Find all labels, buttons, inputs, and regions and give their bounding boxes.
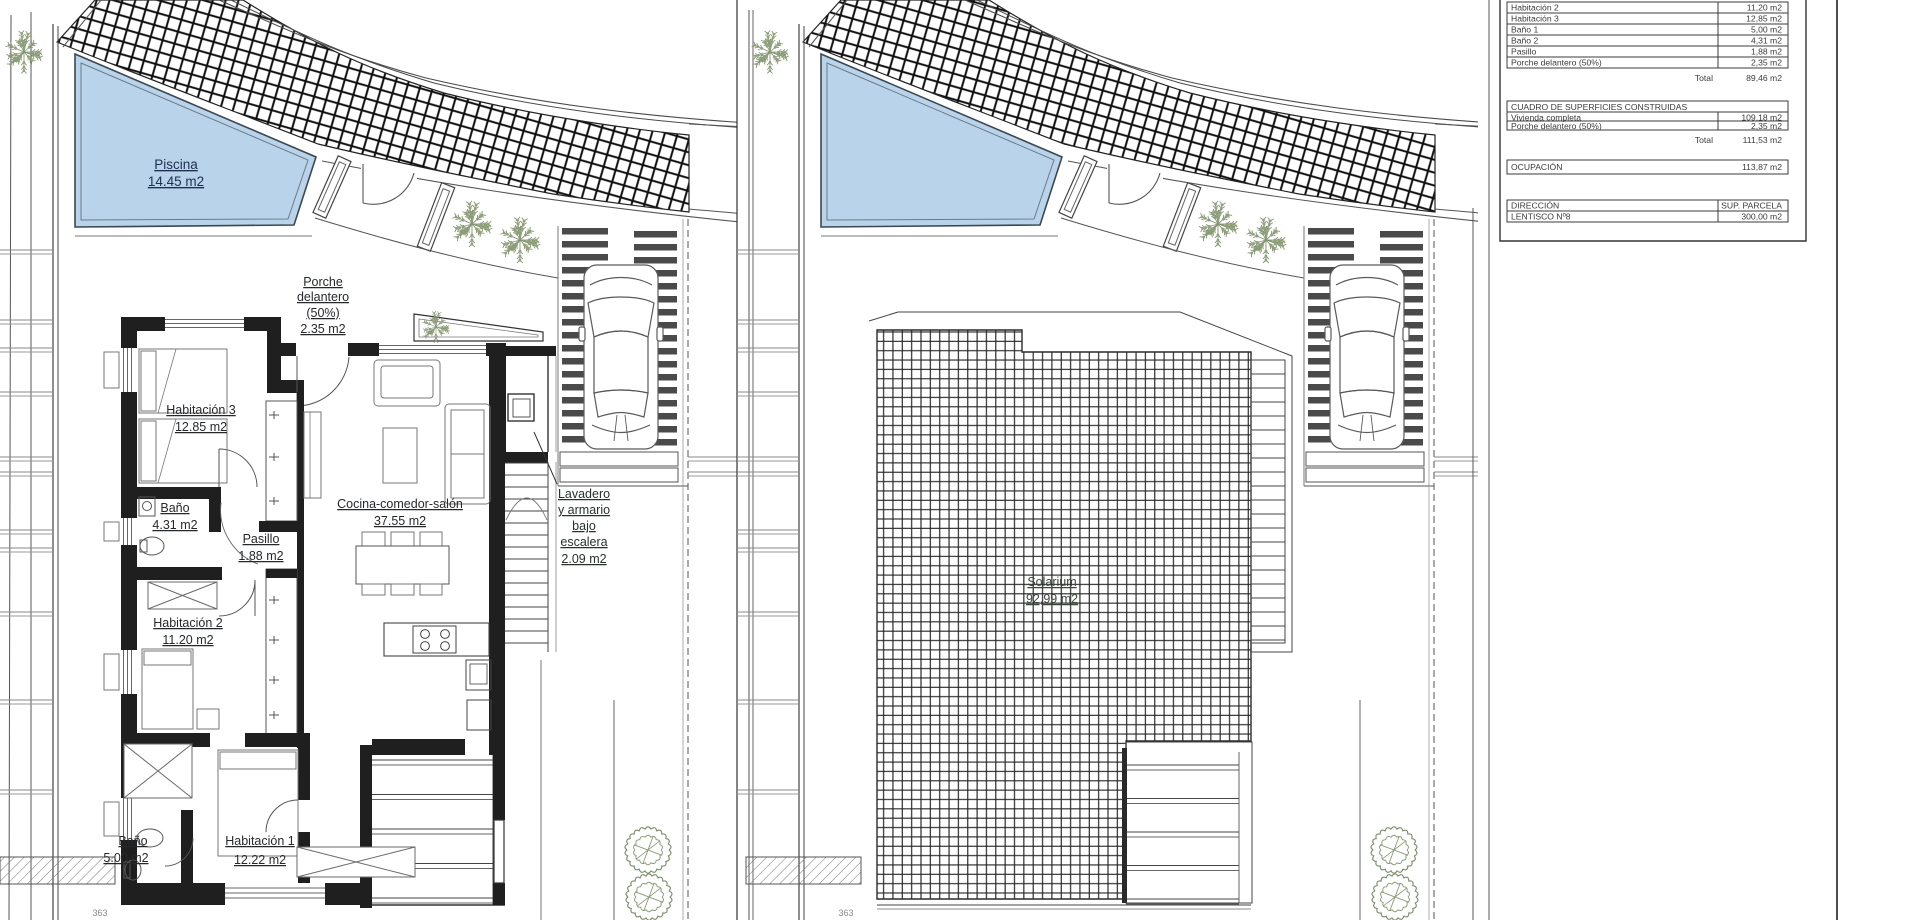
svg-text:92,99 m2: 92,99 m2 <box>1026 592 1078 606</box>
svg-text:5.00 m2: 5.00 m2 <box>103 851 148 865</box>
svg-text:escalera: escalera <box>560 535 607 549</box>
svg-text:113,87 m2: 113,87 m2 <box>1742 162 1782 172</box>
svg-text:Piscina: Piscina <box>154 157 198 172</box>
svg-text:12,85 m2: 12,85 m2 <box>1746 14 1782 24</box>
svg-text:LENTISCO Nº8: LENTISCO Nº8 <box>1511 212 1571 222</box>
svg-text:Baño 2: Baño 2 <box>1511 36 1538 46</box>
svg-text:delantero: delantero <box>297 290 349 304</box>
svg-text:Habitación 3: Habitación 3 <box>166 403 236 417</box>
svg-text:11.20 m2: 11.20 m2 <box>162 633 213 647</box>
svg-text:bajo: bajo <box>572 519 596 533</box>
svg-text:CUADRO DE SUPERFICIES CONSTRUI: CUADRO DE SUPERFICIES CONSTRUIDAS <box>1511 102 1687 112</box>
svg-text:Habitación 2: Habitación 2 <box>1511 3 1559 13</box>
svg-text:4,31 m2: 4,31 m2 <box>1751 36 1782 46</box>
svg-text:Solarium: Solarium <box>1027 575 1076 589</box>
svg-text:Porche delantero (50%): Porche delantero (50%) <box>1511 58 1602 68</box>
svg-text:OCUPACIÓN: OCUPACIÓN <box>1511 162 1562 172</box>
svg-text:12.22 m2: 12.22 m2 <box>234 853 286 867</box>
svg-text:y armario: y armario <box>558 503 610 517</box>
svg-text:14.45 m2: 14.45 m2 <box>148 174 204 189</box>
svg-text:37.55 m2: 37.55 m2 <box>374 514 426 528</box>
svg-text:Lavadero: Lavadero <box>558 487 610 501</box>
svg-text:Baño: Baño <box>160 501 189 515</box>
svg-text:Baño 1: Baño 1 <box>1511 25 1538 35</box>
svg-text:89,46 m2: 89,46 m2 <box>1746 73 1782 83</box>
svg-text:Habitación 1: Habitación 1 <box>225 834 295 848</box>
svg-text:Pasillo: Pasillo <box>243 532 280 546</box>
svg-text:Cocina-comedor-salón: Cocina-comedor-salón <box>337 497 463 511</box>
svg-text:(50%): (50%) <box>306 306 339 320</box>
svg-text:Pasillo: Pasillo <box>1511 47 1537 57</box>
svg-text:Baño: Baño <box>118 834 147 848</box>
svg-text:2.09 m2: 2.09 m2 <box>561 552 606 566</box>
svg-text:11,20 m2: 11,20 m2 <box>1747 3 1782 13</box>
svg-text:5,00 m2: 5,00 m2 <box>1751 25 1782 35</box>
svg-text:Habitación 3: Habitación 3 <box>1511 14 1559 24</box>
svg-text:12.85 m2: 12.85 m2 <box>175 420 227 434</box>
svg-text:363: 363 <box>838 908 853 918</box>
svg-text:Total: Total <box>1695 135 1713 145</box>
svg-text:Porche: Porche <box>303 275 343 289</box>
svg-text:SUP. PARCELA: SUP. PARCELA <box>1721 201 1782 211</box>
svg-text:DIRECCIÓN: DIRECCIÓN <box>1511 201 1559 211</box>
svg-text:2.35 m2: 2.35 m2 <box>300 322 345 336</box>
svg-text:4.31 m2: 4.31 m2 <box>152 518 197 532</box>
svg-text:Habitación 2: Habitación 2 <box>153 616 223 630</box>
svg-text:363: 363 <box>92 908 107 918</box>
svg-text:111,53 m2: 111,53 m2 <box>1743 135 1783 145</box>
svg-text:2,35 m2: 2,35 m2 <box>1751 121 1782 131</box>
svg-text:300,00 m2: 300,00 m2 <box>1741 212 1782 222</box>
svg-text:1,88 m2: 1,88 m2 <box>1751 47 1782 57</box>
svg-text:Total: Total <box>1695 73 1713 83</box>
svg-text:2,35 m2: 2,35 m2 <box>1751 58 1782 68</box>
svg-text:Porche delantero (50%): Porche delantero (50%) <box>1511 121 1602 131</box>
svg-text:1.88 m2: 1.88 m2 <box>238 549 283 563</box>
